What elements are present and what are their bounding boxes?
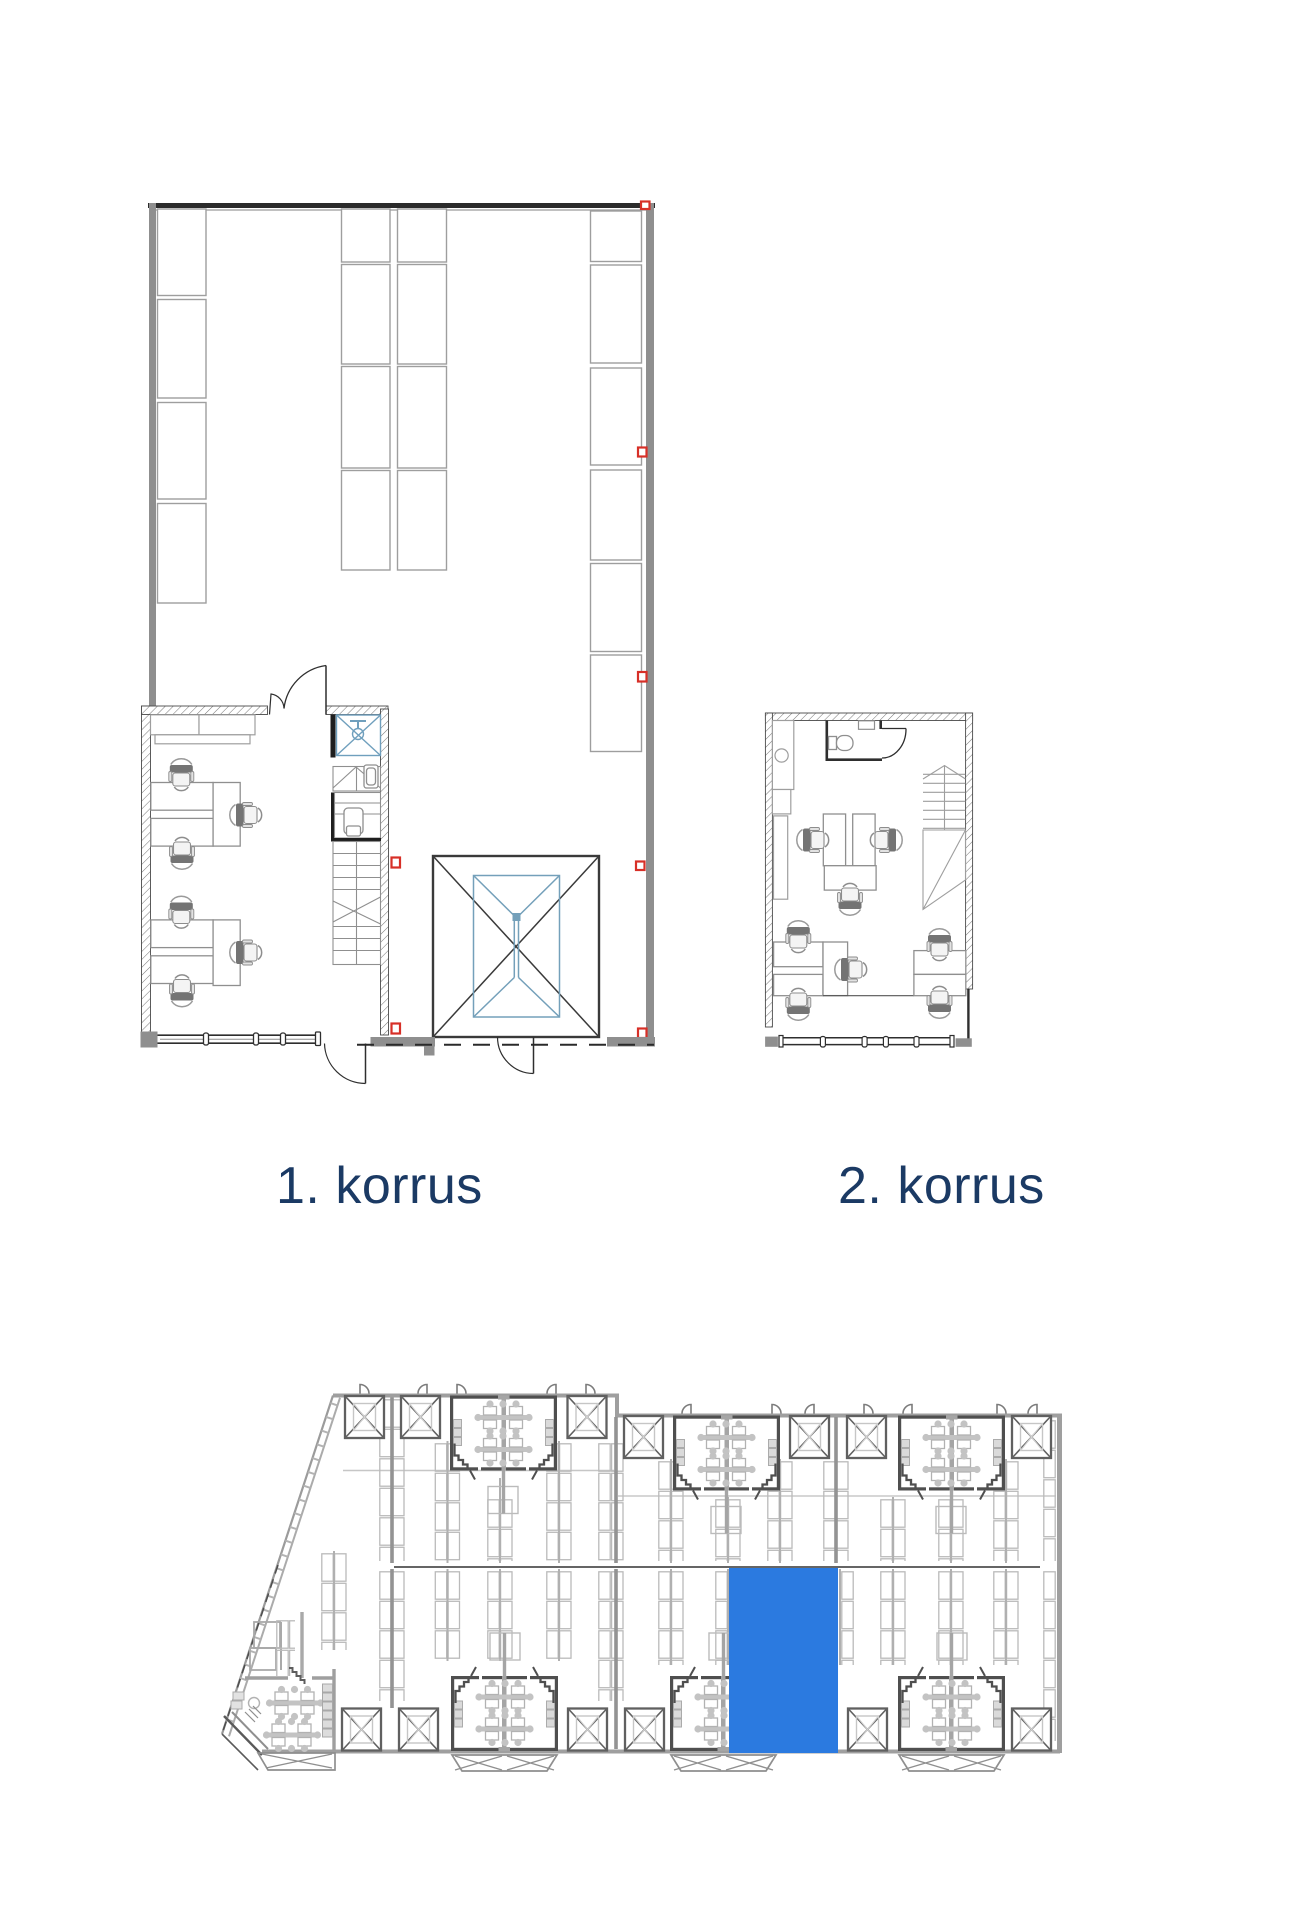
svg-text:2. korrus: 2. korrus [838, 1157, 1045, 1215]
svg-text:1. korrus: 1. korrus [276, 1157, 483, 1215]
